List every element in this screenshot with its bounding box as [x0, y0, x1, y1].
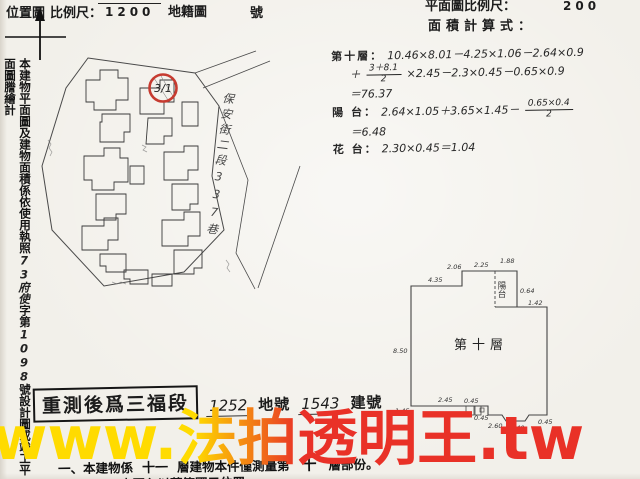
plan-scale-label: 平面圖比例尺： [425, 0, 516, 14]
dim-left: 8.50 [393, 347, 407, 355]
fraction2-numerator: 0.65×0.4 [525, 99, 573, 110]
fraction1-denominator: 2 [366, 74, 401, 86]
floor-plan-title: 第十層 [454, 338, 508, 353]
balcony-label: 陽台 [496, 281, 506, 299]
illegible-scribbles [48, 140, 230, 284]
calc-balcony-label: 陽 台： [332, 106, 377, 120]
dim-top-3: 2.25 [474, 261, 488, 269]
plan-scale-fraction: 200 [556, 0, 607, 15]
scale-value: 1200 [98, 3, 161, 19]
fraction1-numerator: 3＋8.1 [366, 64, 401, 75]
side-annotation-handwritten-2: 1098 [17, 328, 31, 384]
side-annotation-printed-2: 字第 [18, 305, 30, 328]
watermark: www.法拍透明王.tw [0, 390, 584, 477]
calc-flower-expression: 2.30×0.45＝1.04 [382, 140, 476, 155]
area-calculation-block: 第十層：10.46×8.01－4.25×1.06－2.64×0.9 ＋ 3＋8.… [331, 44, 585, 158]
calc-floor-label: 第十層： [331, 49, 383, 63]
dim-right-1: 0.64 [520, 287, 534, 295]
sheet-number-label: 號 [250, 2, 263, 21]
calc-fraction-2: 0.65×0.42 [525, 99, 573, 121]
calc-flower-line: 花 台：2.30×0.45＝1.04 [333, 136, 586, 157]
scale-fraction: 1200 [98, 3, 161, 21]
dim-top-2: 2.06 [447, 263, 461, 271]
area-formula-label: 面積計算式： [428, 15, 536, 34]
fraction2-denominator: 2 [525, 109, 573, 121]
scanned-floor-plan-document: 位置圖 比例尺： 1200 地籍圖 號 平面圖比例尺： 200 面積計算式： 本… [0, 0, 640, 479]
dim-top-1: 4.35 [428, 276, 442, 284]
calc-floor-expression: 10.46×8.01－4.25×1.06－2.64×0.9 [387, 46, 584, 62]
calc-fraction-1: 3＋8.12 [366, 64, 401, 85]
cadastral-map-label: 地籍圖 [168, 1, 207, 20]
calc-flower-label: 花 台： [333, 142, 378, 156]
subject-parcel-number: 3/1 [154, 82, 172, 95]
calc-floor-expression-2: ×2.45－2.3×0.45－0.65×0.9 [406, 65, 564, 81]
calc-balcony-line: 陽 台：2.64×1.05＋3.65×1.45－ 0.65×0.42 [332, 99, 585, 124]
building-footprints [82, 70, 202, 286]
dim-right-2: 1.42 [528, 299, 542, 307]
plan-scale-value: 200 [556, 0, 607, 13]
calc-plus-sign: ＋ [349, 68, 360, 81]
cadastral-map: 3/1 [22, 48, 332, 293]
calc-floor-line2: ＋ 3＋8.12 ×2.45－2.3×0.45－0.65×0.9 [331, 61, 584, 86]
dim-top-4: 1.88 [500, 257, 514, 265]
calc-balcony-expression: 2.64×1.05＋3.65×1.45－ [381, 103, 520, 118]
